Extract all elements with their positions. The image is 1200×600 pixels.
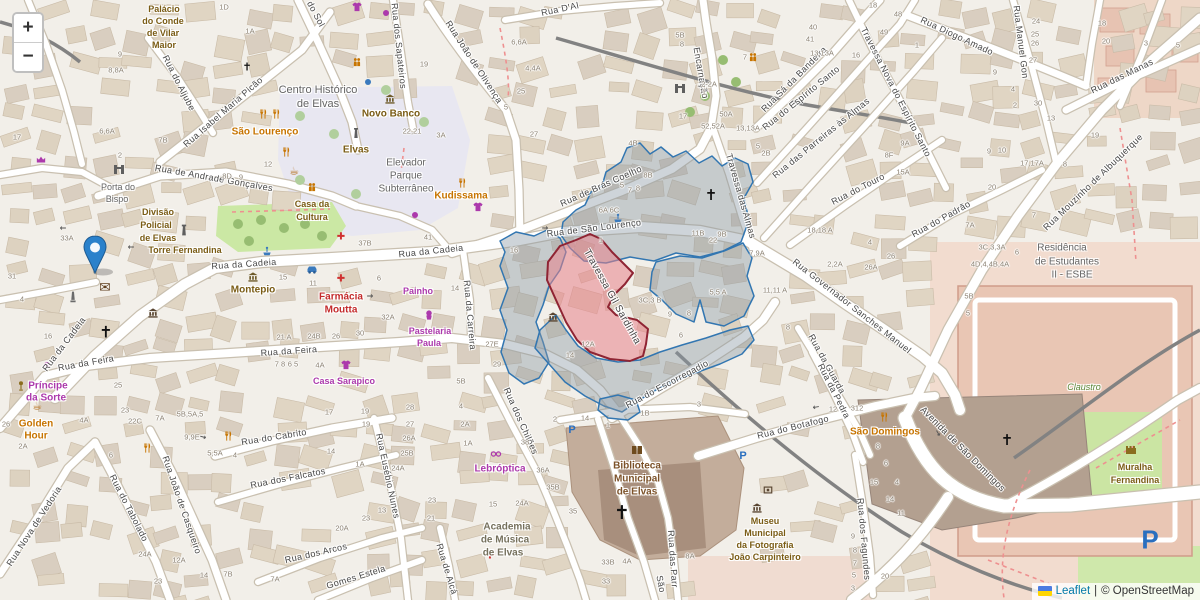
attribution-separator: | <box>1094 585 1097 597</box>
zoom-control: + − <box>12 12 44 73</box>
map-canvas[interactable]: ✝✝✝✝✝✚✚✚✉☕☕PPP→→→→→→→→do SolRua dos Sapa… <box>0 0 1200 600</box>
zoom-out-button[interactable]: − <box>14 43 42 71</box>
basemap <box>0 0 1200 600</box>
attribution-bar: Leaflet | © OpenStreetMap <box>1032 583 1200 600</box>
leaflet-link[interactable]: Leaflet <box>1056 585 1091 597</box>
zoom-in-button[interactable]: + <box>14 14 42 43</box>
map-marker-pin[interactable] <box>74 232 118 276</box>
ukraine-flag-icon <box>1038 586 1052 596</box>
osm-credit-link[interactable]: © OpenStreetMap <box>1101 585 1194 597</box>
